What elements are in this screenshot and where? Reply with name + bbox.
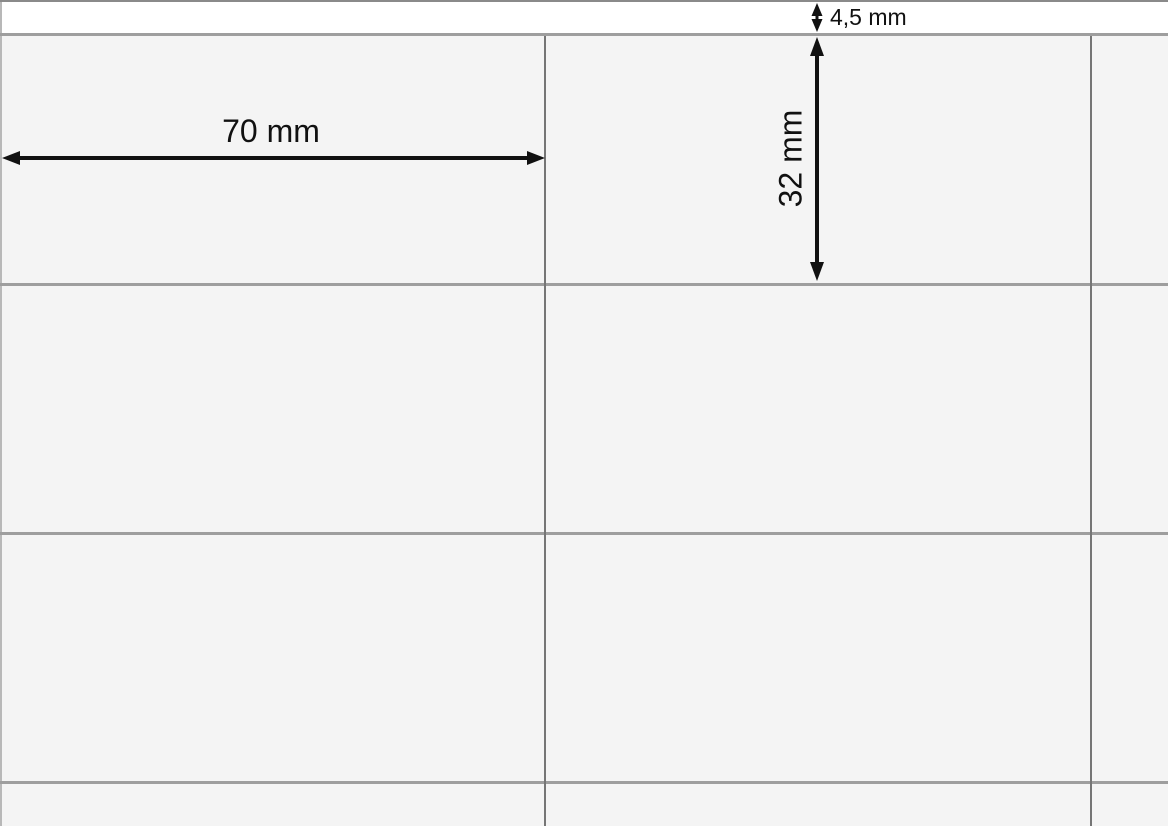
top-margin-dimension-text: 4,5 mm <box>830 5 907 29</box>
grid-line-vertical <box>1090 36 1092 826</box>
label-height-dimension-text: 32 mm <box>775 99 808 219</box>
grid-line-horizontal <box>0 532 1168 535</box>
grid-line-horizontal <box>0 33 1168 36</box>
sheet-top-margin-strip <box>0 2 1168 33</box>
grid-line-vertical <box>544 36 546 826</box>
label-grid-area <box>0 33 1168 826</box>
grid-line-horizontal <box>0 781 1168 784</box>
label-width-dimension-text: 70 mm <box>151 114 391 148</box>
label-sheet-diagram: 70 mm 4,5 mm 32 mm <box>0 0 1168 826</box>
sheet-left-edge-line <box>0 2 2 826</box>
grid-line-horizontal <box>0 283 1168 286</box>
